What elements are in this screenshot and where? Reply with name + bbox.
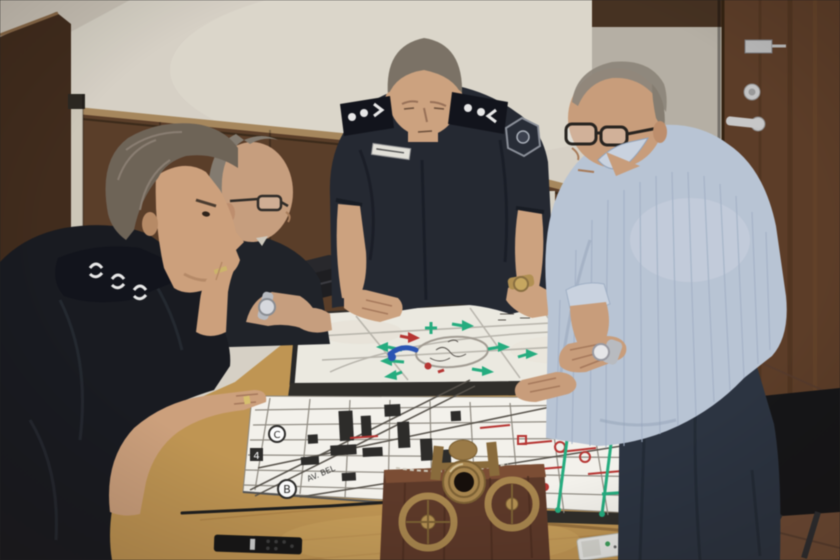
vignette-overlay xyxy=(0,0,840,560)
photo-officers-map: B C 4 AV. BEL xyxy=(0,0,840,560)
